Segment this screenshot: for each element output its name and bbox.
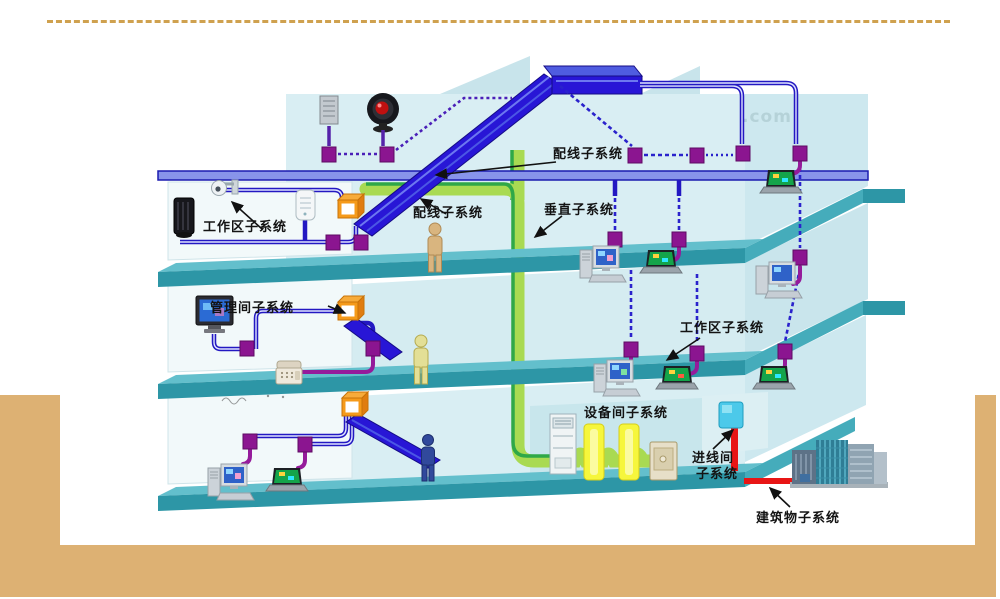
desktop-pc-floor3-left (208, 464, 254, 500)
label-workarea-subsystem-left: 工作区子系统 (203, 219, 287, 235)
equipment-rack-1 (584, 424, 604, 480)
horizontal-distribution-line (158, 171, 868, 180)
equipment-rack-2 (619, 424, 639, 480)
junction-box-floor3 (342, 392, 368, 416)
distribution-cabinet (650, 442, 677, 480)
motion-sensor (296, 190, 315, 220)
label-entrance-subsystem-line1: 进线间 (692, 450, 734, 466)
dot-com-watermark: .com (742, 107, 792, 127)
label-entrance-subsystem-line2: 子系统 (696, 466, 738, 482)
equipment-cabinet (550, 414, 576, 474)
junction-box-floor1 (338, 194, 364, 218)
label-equipment-subsystem: 设备间子系统 (584, 405, 668, 421)
wall-speaker (320, 96, 338, 124)
label-workarea-subsystem-right: 工作区子系统 (680, 320, 764, 336)
desktop-pc-floor2 (580, 246, 626, 282)
entrance-box (719, 402, 743, 428)
label-distribution-subsystem-top: 配线子系统 (553, 146, 623, 162)
label-building-subsystem: 建筑物子系统 (756, 510, 840, 526)
cabling-diagram: .com (0, 0, 1000, 599)
label-vertical-subsystem: 垂直子系统 (544, 202, 614, 218)
label-management-subsystem: 管理间子系统 (210, 300, 294, 316)
junction-box-floor2 (338, 296, 364, 320)
slide-canvas: .com (0, 0, 1000, 599)
building-cable-red (744, 478, 798, 484)
barrier-sensor (174, 198, 194, 238)
label-distribution-subsystem-mid: 配线子系统 (413, 205, 483, 221)
desktop-pc-floor3-mid (594, 360, 640, 396)
desktop-pc-wing-floor2 (756, 262, 802, 298)
telephone (276, 361, 302, 384)
